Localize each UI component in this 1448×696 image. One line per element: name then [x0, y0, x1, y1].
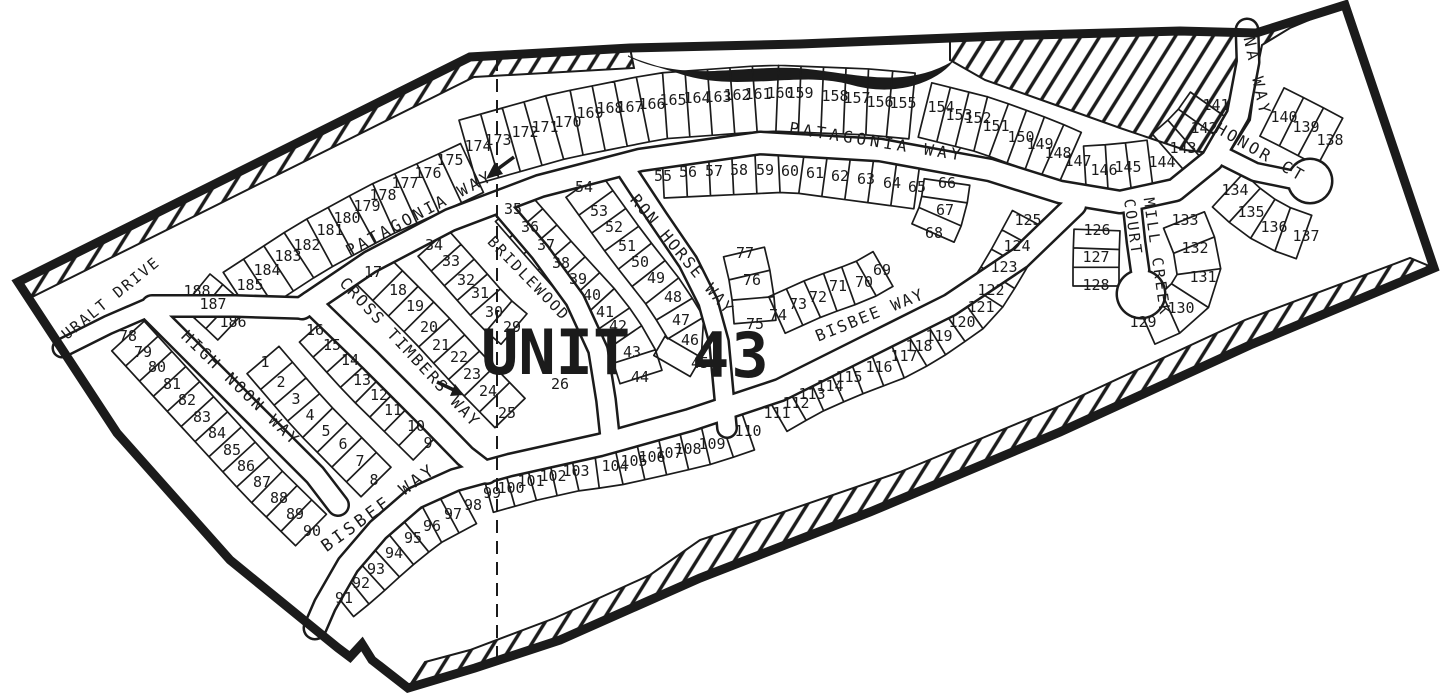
- lot-number: 10: [407, 417, 425, 435]
- lot-number: 98: [464, 496, 482, 514]
- lot-number: 17: [364, 263, 382, 281]
- lot-number: 59: [756, 161, 774, 179]
- lot-number: 128: [1082, 276, 1109, 294]
- lot-number: 94: [385, 544, 403, 562]
- lot-number: 125: [1014, 211, 1041, 229]
- lot-number: 1: [260, 353, 269, 371]
- lot-number: 23: [463, 365, 481, 383]
- lot-number: 49: [647, 269, 665, 287]
- lot-number: 122: [977, 281, 1004, 299]
- lot-number: 110: [734, 422, 761, 440]
- lot-number: 127: [1082, 248, 1109, 266]
- lot-number: 58: [730, 161, 748, 179]
- lot-number: 115: [835, 368, 862, 386]
- lot-number: 172: [511, 123, 538, 141]
- lot-number: 3: [291, 390, 300, 408]
- lot-number: 71: [829, 277, 847, 295]
- lot-number: 72: [809, 288, 827, 306]
- lot-number: 131: [1189, 268, 1216, 286]
- lot-number: 15: [323, 336, 341, 354]
- lot-number: 4: [305, 406, 314, 424]
- lot-number: 69: [873, 261, 891, 279]
- lot-number: 7: [355, 452, 364, 470]
- lot-number: 20: [420, 318, 438, 336]
- lot-number: 61: [806, 164, 824, 182]
- lot-number: 158: [821, 87, 848, 105]
- lot-number: 47: [672, 311, 690, 329]
- lot-number: 65: [908, 178, 926, 196]
- lot-number: 103: [562, 462, 589, 480]
- lot-number: 16: [306, 321, 324, 339]
- lot-number: 132: [1181, 239, 1208, 257]
- lot-number: 37: [537, 236, 555, 254]
- lot-number: 138: [1316, 131, 1343, 149]
- lot-number: 18: [389, 281, 407, 299]
- lot-number: 74: [769, 306, 787, 324]
- lot-number: 22: [450, 348, 468, 366]
- lot-number: 55: [654, 167, 672, 185]
- road: [152, 306, 302, 308]
- lot-number: 144: [1148, 153, 1175, 171]
- lot-number: 5: [321, 422, 330, 440]
- lot-number: 60: [781, 162, 799, 180]
- lot-number: 25: [498, 404, 516, 422]
- lot-number: 123: [990, 258, 1017, 276]
- lot-number: 76: [743, 271, 761, 289]
- lot-number: 137: [1292, 227, 1319, 245]
- lot-number: 62: [831, 167, 849, 185]
- lot-number: 164: [683, 89, 710, 107]
- lot-number: 53: [590, 202, 608, 220]
- lot-number: 188: [183, 282, 210, 300]
- lot-number: 57: [705, 162, 723, 180]
- lot-number: 186: [219, 313, 246, 331]
- lot-number: 8: [369, 471, 378, 489]
- lot-number: 185: [236, 276, 263, 294]
- lot-number: 50: [631, 253, 649, 271]
- lot-number: 73: [789, 295, 807, 313]
- lot-number: 51: [618, 237, 636, 255]
- lot-number: 136: [1260, 218, 1287, 236]
- lot-number: 40: [583, 286, 601, 304]
- lot-number: 77: [736, 244, 754, 262]
- lot-number: 54: [575, 178, 593, 196]
- lot-number: 116: [865, 358, 892, 376]
- lot-number: 48: [664, 288, 682, 306]
- lot-number: 84: [208, 424, 226, 442]
- lot-number: 82: [178, 391, 196, 409]
- lot-number: 140: [1270, 108, 1297, 126]
- lot-number: 142: [1190, 119, 1217, 137]
- lot-number: 32: [457, 271, 475, 289]
- lot-number: 130: [1167, 299, 1194, 317]
- lot-number: 70: [855, 273, 873, 291]
- lot-number: 146: [1090, 161, 1117, 179]
- lot-number: 87: [253, 473, 271, 491]
- lot-number: 129: [1129, 313, 1156, 331]
- lot-number: 36: [521, 218, 539, 236]
- lot-number: 91: [335, 589, 353, 607]
- lot-number: 52: [605, 218, 623, 236]
- lot-number: 9: [423, 434, 432, 452]
- plat-map-svg: URALT DRIVEHIGH NOON WAYCROSS TIMBERS WA…: [0, 0, 1448, 696]
- lot-number: 66: [938, 174, 956, 192]
- lot-number: 12: [370, 386, 388, 404]
- lot-number: 56: [679, 163, 697, 181]
- lot-number: 2: [276, 373, 285, 391]
- lot-number: 64: [883, 174, 901, 192]
- lot-number: 34: [425, 236, 443, 254]
- lot-number: 44: [631, 368, 649, 386]
- lot-number: 21: [432, 336, 450, 354]
- lot-number: 150: [1007, 128, 1034, 146]
- lot-number: 134: [1221, 181, 1248, 199]
- lot-number: 67: [936, 201, 954, 219]
- unit-title-number: 43: [692, 319, 771, 392]
- lot-number: 35: [504, 200, 522, 218]
- lot-number: 121: [967, 298, 994, 316]
- lot-number: 68: [925, 224, 943, 242]
- lot-number: 93: [367, 560, 385, 578]
- lot-number: 133: [1171, 211, 1198, 229]
- plat-map: URALT DRIVEHIGH NOON WAYCROSS TIMBERS WA…: [0, 0, 1448, 696]
- lot-number: 97: [444, 505, 462, 523]
- lot-number: 14: [341, 351, 359, 369]
- lot-number: 63: [857, 170, 875, 188]
- lot-number: 96: [423, 517, 441, 535]
- lot-number: 124: [1003, 237, 1030, 255]
- lot-number: 154: [927, 98, 954, 116]
- lot-number: 6: [338, 435, 347, 453]
- lot-number: 126: [1083, 221, 1110, 239]
- lot-number: 109: [698, 435, 725, 453]
- lot-number: 38: [552, 254, 570, 272]
- lot-number: 19: [406, 297, 424, 315]
- lot-number: 89: [286, 505, 304, 523]
- lot-number: 145: [1114, 158, 1141, 176]
- unit-title-label: UNIT: [481, 316, 630, 389]
- lot-number: 90: [303, 522, 321, 540]
- lot-number: 80: [148, 358, 166, 376]
- lot-number: 174: [464, 137, 491, 155]
- lot-number: 95: [404, 529, 422, 547]
- lot-number: 33: [442, 252, 460, 270]
- lot-number: 13: [353, 371, 371, 389]
- lot-number: 141: [1202, 96, 1229, 114]
